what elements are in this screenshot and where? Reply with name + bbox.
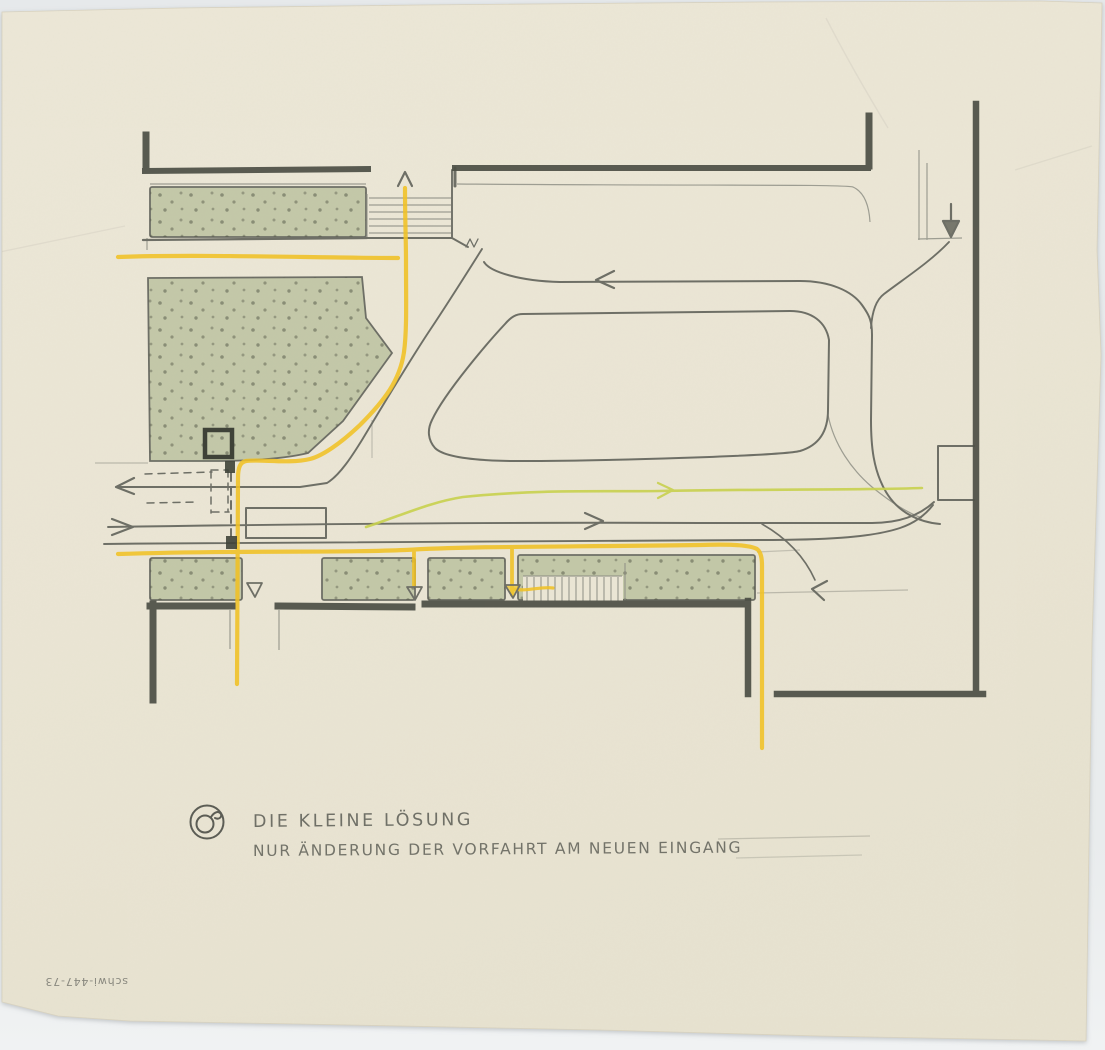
stipple-area bbox=[150, 558, 242, 600]
caption-title: DIE KLEINE LÖSUNG bbox=[253, 808, 473, 832]
paper-grain-texture bbox=[0, 0, 1105, 1050]
drawing-layer: DIE KLEINE LÖSUNG NUR ÄNDERUNG DER VORFA… bbox=[0, 0, 1105, 1050]
stipple-area bbox=[322, 558, 415, 600]
site-plan-sketch: DIE KLEINE LÖSUNG NUR ÄNDERUNG DER VORFA… bbox=[0, 0, 1105, 1050]
wall-lower-2 bbox=[278, 606, 412, 607]
stipple-area bbox=[428, 558, 505, 600]
caption-subtitle: NUR ÄNDERUNG DER VORFAHRT AM NEUEN EINGA… bbox=[253, 838, 742, 860]
stipple-area bbox=[150, 187, 366, 237]
archive-code: schwi-447-73 bbox=[45, 975, 128, 988]
yellow-path-upper bbox=[118, 256, 398, 258]
post-marker-1 bbox=[225, 461, 235, 473]
scanned-sketch-page: DIE KLEINE LÖSUNG NUR ÄNDERUNG DER VORFA… bbox=[0, 0, 1105, 1050]
wall-top-left bbox=[145, 169, 368, 171]
post-marker-2 bbox=[226, 536, 237, 549]
